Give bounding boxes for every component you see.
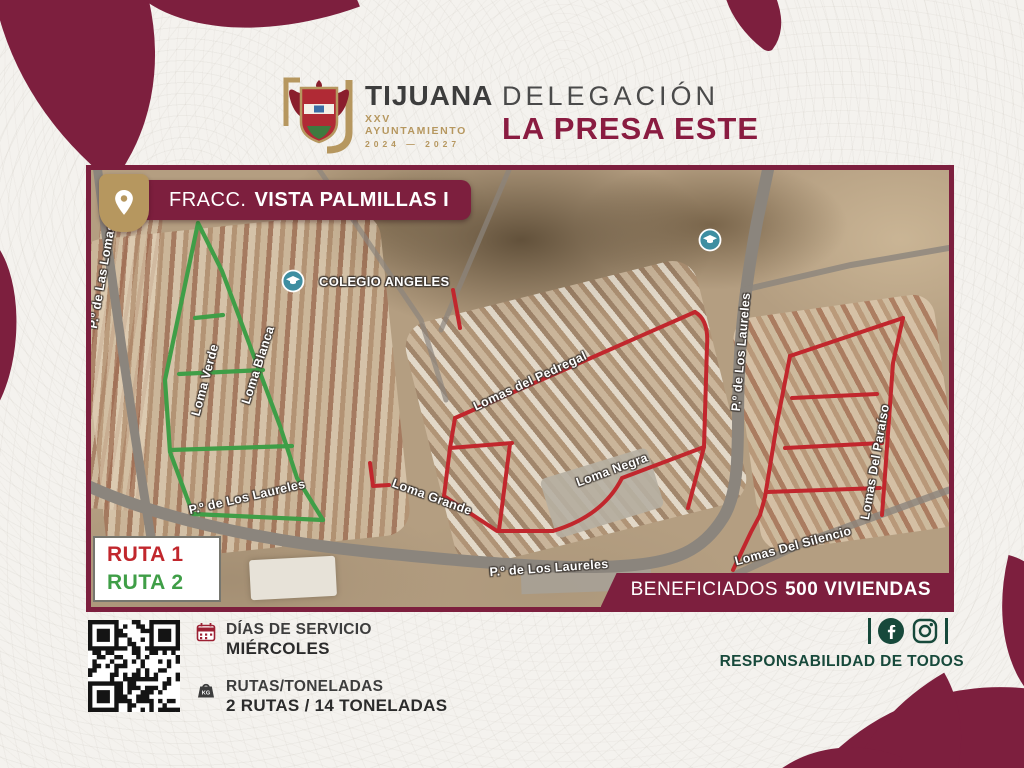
satellite-map: P.º de Las Lomas Loma Verde Loma Blanca …	[86, 165, 954, 612]
map-pin-icon	[111, 188, 137, 218]
divider	[868, 618, 871, 644]
school-poi-label: COLEGIO ANGELES	[319, 274, 449, 289]
corner-petal-decoration	[0, 231, 23, 439]
routes-tons-row: KG RUTAS/TONELADAS 2 RUTAS / 14 TONELADA…	[196, 678, 447, 716]
fracc-prefix: FRACC.	[169, 189, 246, 212]
beneficiaries-value: 500 VIVIENDAS	[785, 579, 931, 601]
header: TIJUANA XXV AYUNTAMIENTO 2024 — 2027 DEL…	[0, 0, 1024, 160]
logo-subtitle: XXV AYUNTAMIENTO	[365, 113, 493, 137]
divider	[945, 618, 948, 644]
location-pin-badge	[99, 174, 149, 232]
beneficiaries-label: BENEFICIADOS	[631, 579, 778, 601]
fraccionamiento-banner: FRACC. VISTA PALMILLAS I	[121, 180, 471, 220]
service-days-value: MIÉRCOLES	[226, 638, 372, 659]
delegation-name: LA PRESA ESTE	[502, 112, 759, 146]
calendar-icon	[196, 622, 216, 642]
fracc-name: VISTA PALMILLAS I	[254, 189, 449, 212]
social-icons	[868, 617, 948, 645]
service-days-label: DÍAS DE SERVICIO	[226, 621, 372, 638]
routes-tons-label: RUTAS/TONELADAS	[226, 678, 447, 695]
school-marker-icon	[281, 269, 305, 293]
routes-tons-value: 2 RUTAS / 14 TONELADAS	[226, 695, 447, 716]
delegation-heading: DELEGACIÓN LA PRESA ESTE	[502, 82, 759, 146]
delegation-label: DELEGACIÓN	[502, 82, 759, 110]
logo-title: TIJUANA	[365, 82, 493, 110]
legend-ruta2: RUTA 2	[107, 570, 219, 596]
logo-years: 2024 — 2027	[365, 139, 493, 149]
footer: DÍAS DE SERVICIO MIÉRCOLES KG RUTAS/TONE…	[0, 612, 1024, 768]
motto-text: RESPONSABILIDAD DE TODOS	[720, 653, 964, 671]
facebook-icon[interactable]	[877, 617, 905, 645]
kg-weight-icon: KG	[196, 679, 216, 699]
route-legend: RUTA 1 RUTA 2	[93, 536, 221, 602]
ruta2-route-lines	[165, 223, 323, 520]
tijuana-city-logo: TIJUANA XXV AYUNTAMIENTO 2024 — 2027	[283, 74, 483, 160]
service-days-row: DÍAS DE SERVICIO MIÉRCOLES	[196, 621, 372, 659]
qr-code	[88, 620, 180, 712]
school-marker-icon	[698, 228, 722, 252]
kg-badge-text: KG	[202, 690, 210, 696]
beneficiaries-banner: BENEFICIADOS 500 VIVIENDAS	[601, 573, 949, 607]
flyer-page: TIJUANA XXV AYUNTAMIENTO 2024 — 2027 DEL…	[0, 0, 1024, 768]
legend-ruta1: RUTA 1	[107, 542, 219, 568]
ruta1-route-lines	[370, 290, 903, 570]
coat-of-arms-icon	[283, 74, 363, 160]
instagram-icon[interactable]	[911, 617, 939, 645]
